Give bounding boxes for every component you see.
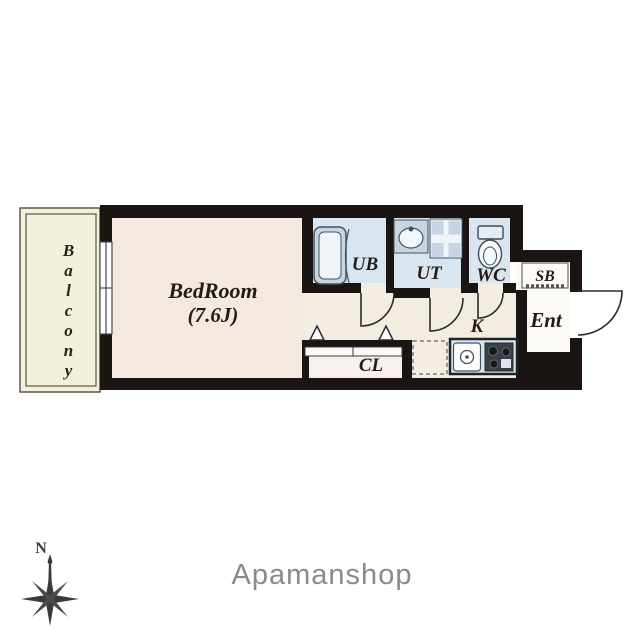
wall-entrance-bottom-mass: [516, 352, 582, 390]
wall-bath-utility-divider: [386, 205, 394, 293]
wash-basin-icon: [394, 220, 428, 253]
toilet-bowl: [479, 240, 502, 268]
bathtub-inner: [319, 232, 341, 279]
balcony-label: Balcony: [44, 241, 78, 371]
washer-pan-icon: [430, 219, 462, 258]
closet-label: CL: [359, 355, 383, 376]
unit-bath-label: UB: [352, 254, 378, 275]
stove-burner: [490, 360, 498, 368]
compass-icon: N: [21, 540, 79, 626]
bathtub-icon: [314, 227, 349, 284]
brand-logo-text: Apamanshop: [232, 559, 413, 591]
entrance-label: Ent: [529, 308, 563, 332]
shoe-box-label: SB: [535, 268, 555, 285]
washer-pan-corner: [449, 243, 461, 257]
stove-grill: [501, 359, 511, 368]
floorplan-page: BedRoom (7.6J) UB UT WC SB Ent K CL N Ap…: [0, 0, 640, 640]
toilet-label: WC: [476, 265, 506, 286]
wall-utility-bottom: [394, 288, 430, 298]
floorplan-drawing: BedRoom (7.6J) UB UT WC SB Ent K CL N Ap…: [0, 0, 640, 640]
wall-bottom: [100, 378, 582, 390]
wall-closet-top: [302, 340, 412, 347]
door-arc-entrance: [578, 291, 622, 335]
compass-north-label: N: [35, 540, 47, 557]
kitchen-counter: [450, 339, 517, 374]
bedroom-label: BedRoom: [167, 278, 257, 303]
toilet-tank: [478, 226, 503, 239]
wall-bath-left: [302, 205, 313, 293]
wall-wc-right: [510, 205, 523, 262]
sink-drain-dot: [465, 355, 469, 359]
washer-pan-corner: [432, 243, 444, 257]
stove-burner: [489, 347, 498, 356]
utility-label: UT: [416, 263, 443, 284]
kitchen-label: K: [470, 316, 485, 337]
basin-faucet: [409, 227, 414, 232]
washer-pan-corner: [449, 221, 461, 235]
washer-pan-corner: [432, 221, 444, 235]
wall-left-upper: [100, 205, 112, 242]
bedroom-size-label: (7.6J): [188, 303, 239, 327]
stove-burner: [502, 348, 510, 356]
toilet-icon: [478, 226, 503, 268]
balcony-window: [100, 242, 112, 334]
